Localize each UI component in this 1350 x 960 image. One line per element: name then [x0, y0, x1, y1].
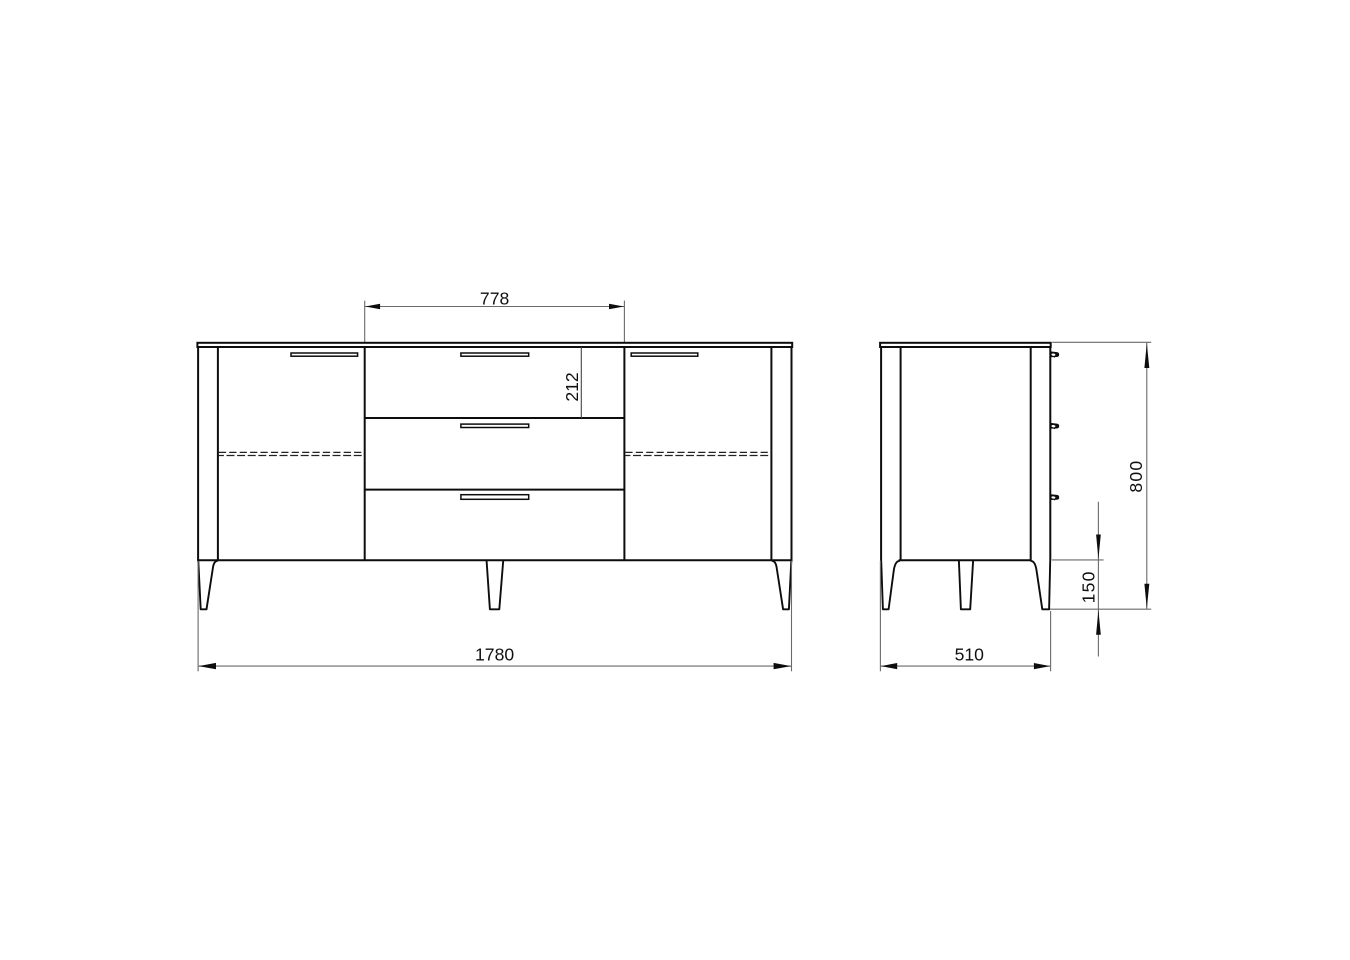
svg-text:1780: 1780 — [475, 644, 514, 664]
svg-text:800: 800 — [1126, 460, 1146, 493]
svg-text:778: 778 — [480, 288, 510, 308]
svg-text:212: 212 — [562, 372, 582, 401]
svg-text:510: 510 — [955, 644, 985, 664]
svg-text:150: 150 — [1078, 570, 1098, 603]
